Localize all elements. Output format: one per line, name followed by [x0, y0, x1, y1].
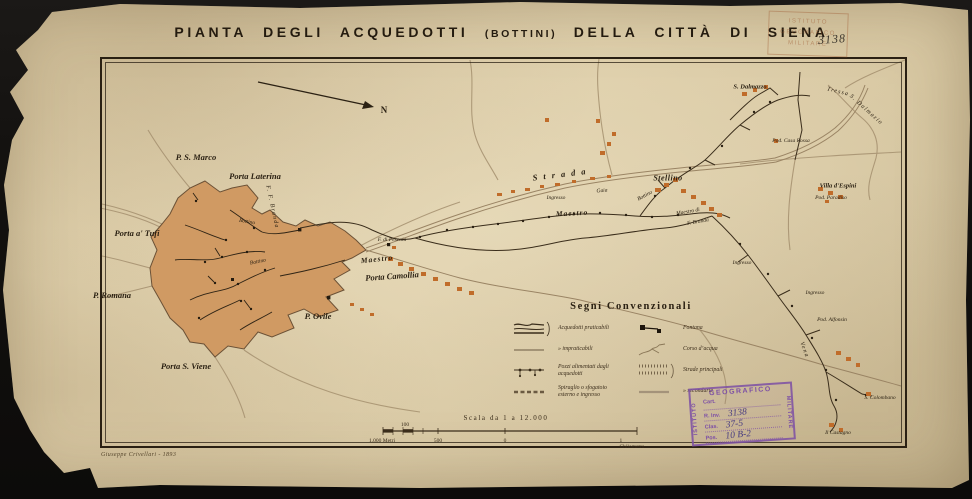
legend-label: Spiraglio o sfogatoio esterno e ingresso: [558, 385, 624, 399]
stamp-right-text: MILITARE: [781, 390, 793, 437]
legend-item: Corso d’acqua: [638, 342, 749, 358]
fountain-icon: [638, 321, 678, 337]
legend-item: Spiraglio o sfogatoio esterno e ingresso: [513, 384, 624, 400]
legend-label: » impraticabili: [558, 346, 593, 353]
stamp-field-label: Pos.: [705, 435, 717, 442]
stamp-class-number: 37-5: [725, 419, 743, 431]
main-roads-icon: [638, 363, 678, 379]
igm-library-stamp: GEOGRAFICO ISTITUTO MILITARE Cart. R. In…: [688, 381, 796, 446]
legend-label: Strade principali: [683, 367, 722, 374]
scanned-map-photo: PIANTA DEGLI ACQUEDOTTI (BOTTINI) DELLA …: [0, 0, 972, 499]
stamp-field-label: R. Inv.: [704, 413, 720, 420]
wells-icon: [513, 363, 553, 379]
stamp-field-label: Clas.: [705, 424, 719, 431]
scale-label-0: 0: [504, 438, 507, 444]
legend: Segni Convenzionali Acquedotti praticabi…: [513, 301, 749, 400]
legend-left-column: Acquedotti praticabili » impraticabili: [513, 321, 624, 400]
legend-title: Segni Convenzionali: [513, 301, 749, 312]
cartographer-credit: Giuseppe Crivellari - 1893: [101, 452, 176, 458]
legend-label: Corso d’acqua: [683, 346, 718, 353]
scale-bar: Scala da 1 a 12.000 100 1.000 Metri 500 …: [358, 414, 654, 446]
title-part1: PIANTA DEGLI ACQUEDOTTI: [174, 24, 468, 40]
watercourse-icon: [638, 342, 678, 358]
vent-icon: [513, 384, 553, 400]
legend-item: Strade principali: [638, 363, 749, 379]
legend-item: Acquedotti praticabili: [513, 321, 624, 337]
aqueduct-impracticable-icon: [513, 342, 553, 358]
legend-item: Pozzi alimentati dagli acquedotti: [513, 363, 624, 379]
stamp-position-number: 10 B-2: [725, 429, 751, 442]
legend-label: Acquedotti praticabili: [558, 325, 609, 332]
legend-item: » impraticabili: [513, 342, 624, 358]
stamp-field-label: Cart.: [703, 399, 716, 406]
secondary-roads-icon: [638, 384, 678, 400]
legend-label: Fontana: [683, 325, 703, 332]
legend-label: Pozzi alimentati dagli acquedotti: [558, 364, 624, 378]
title-part2: (BOTTINI): [485, 28, 557, 40]
scale-tick-100: 100: [401, 422, 409, 428]
aqueduct-practicable-icon: [513, 321, 553, 337]
scale-label-metri: 1.000 Metri: [369, 438, 395, 444]
stamp-left-text: ISTITUTO: [691, 396, 703, 443]
stamp-fields: Cart. R. Inv.3138 Clas.37-5 Pos.10 B-2: [703, 394, 783, 443]
stamp-inventory-number: 3138: [728, 407, 748, 419]
scale-label-500: 500: [434, 438, 442, 444]
legend-item: Fontana: [638, 321, 749, 337]
handwritten-inventory-number: 3138: [818, 31, 847, 48]
scale-label-km: 1 Chilometro: [619, 438, 644, 450]
scale-caption: Scala da 1 a 12.000: [358, 414, 654, 422]
